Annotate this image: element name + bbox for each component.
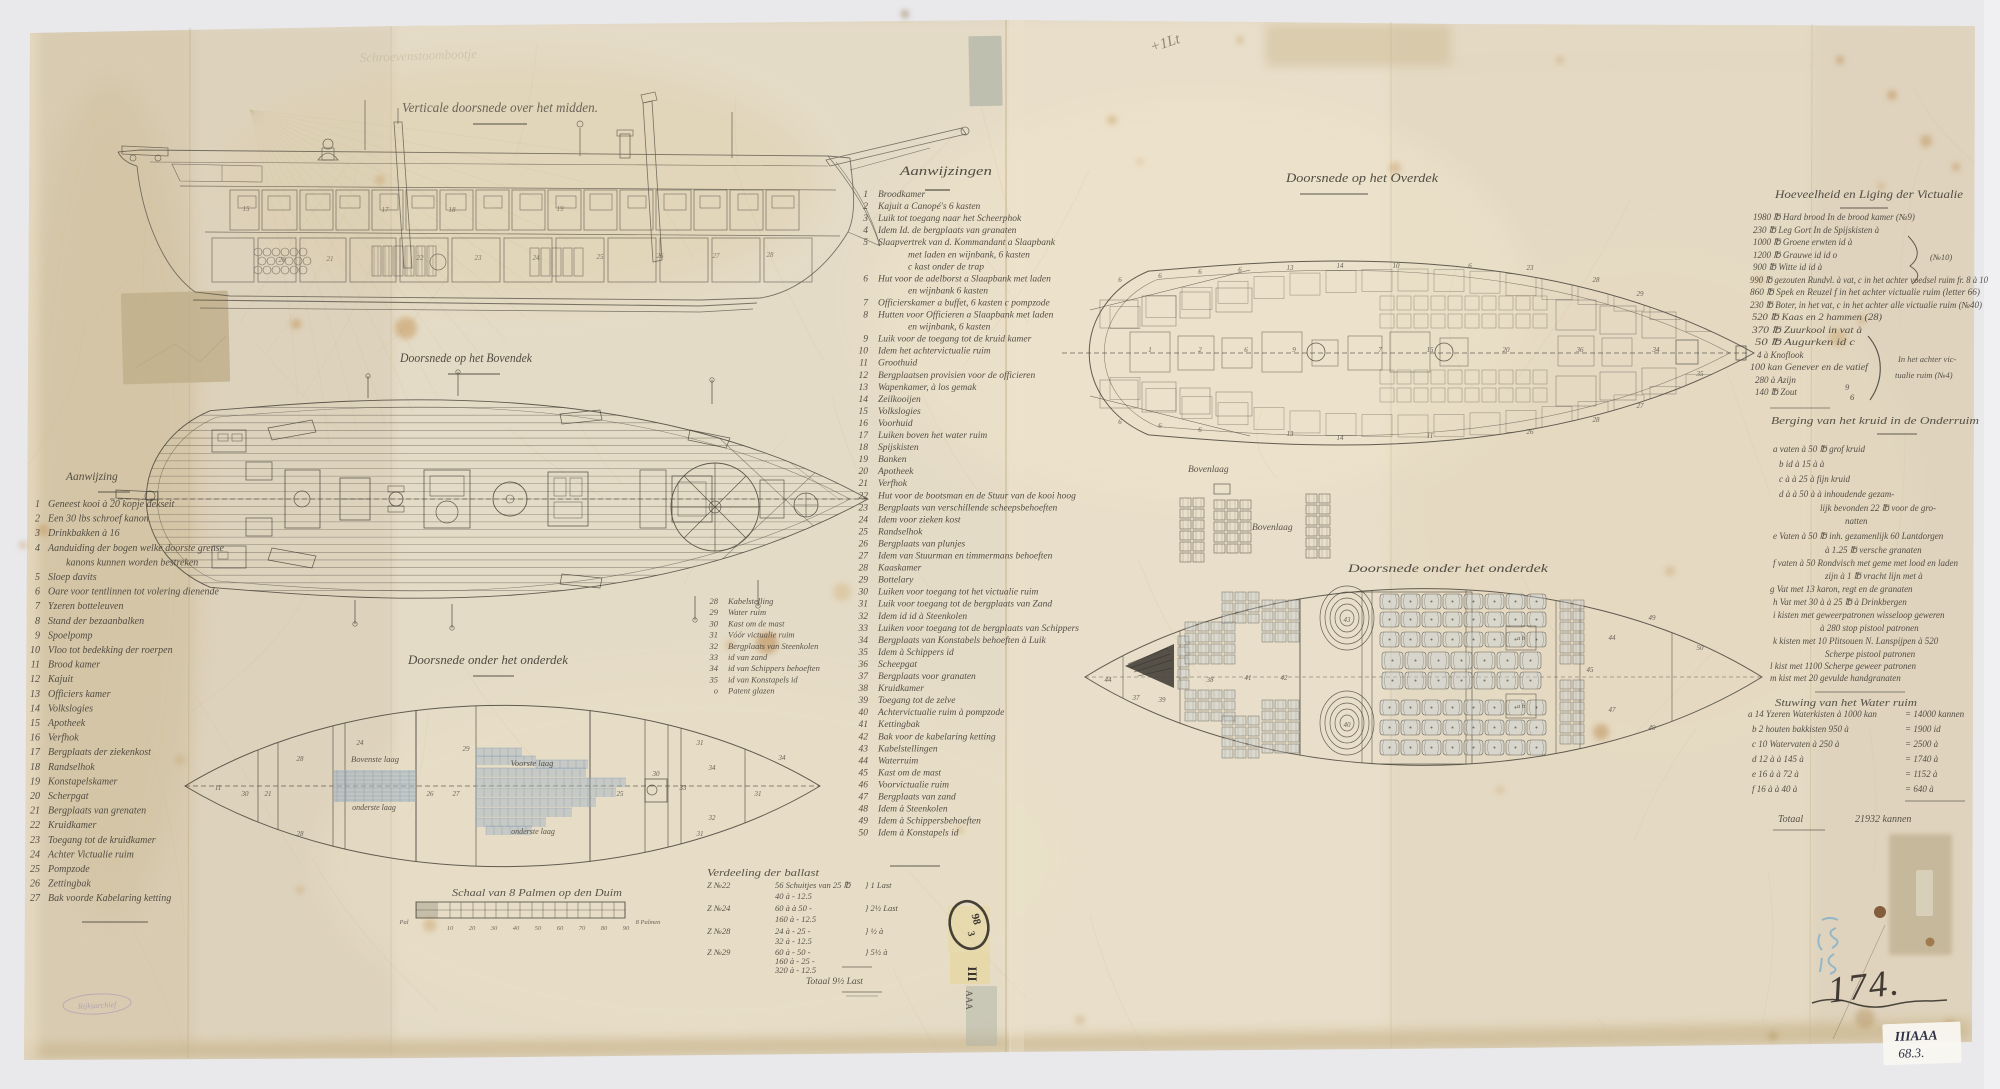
- svg-text:11: 11: [31, 660, 40, 671]
- svg-text:Wapenkamer, à los gemak: Wapenkamer, à los gemak: [878, 383, 977, 393]
- svg-text:2: 2: [1198, 346, 1202, 354]
- svg-text:33: 33: [858, 624, 869, 634]
- svg-text:230 ℔ Leg Gort In de Sp: 230 ℔ Leg Gort In de Spijskisten à: [1753, 225, 1880, 235]
- svg-text:Voorhuid: Voorhuid: [878, 419, 913, 429]
- svg-text:g Vat met 13 karon, regt en de: g Vat met 13 karon, regt en de granaten: [1770, 584, 1913, 594]
- svg-text:28: 28: [297, 755, 305, 763]
- svg-text:Bergplaats van grenaten: Bergplaats van grenaten: [48, 806, 146, 817]
- svg-text:28: 28: [1593, 416, 1601, 424]
- svg-text:19: 19: [30, 776, 40, 787]
- svg-text:28: 28: [767, 251, 775, 259]
- svg-text:49: 49: [1649, 614, 1657, 622]
- svg-text:30: 30: [490, 925, 498, 932]
- svg-text:Hut voor de adelborst a Slaapb: Hut voor de adelborst a Slaapbank met la…: [877, 274, 1051, 284]
- svg-text:Volkslogies: Volkslogies: [878, 407, 921, 417]
- svg-text:11: 11: [859, 359, 868, 369]
- svg-text:20: 20: [1503, 346, 1511, 354]
- svg-text:Zeilkooijen: Zeilkooijen: [878, 395, 921, 405]
- svg-text:Idem het achtervictua: Idem het achtervictualie ruim: [877, 347, 991, 357]
- svg-text:900 ℔ Witte id: 900 ℔ Witte id id à: [1753, 262, 1823, 272]
- svg-text:e Vaten à 50 ℔ inh. gezamenlij: e Vaten à 50 ℔ inh. gezamenlijk 60 Lantd…: [1773, 531, 1944, 541]
- svg-text:22: 22: [417, 254, 425, 262]
- svg-text:Zettingbak: Zettingbak: [48, 879, 91, 890]
- svg-text:28: 28: [710, 596, 719, 606]
- svg-text:50: 50: [535, 925, 542, 932]
- svg-text:28: 28: [859, 564, 869, 574]
- svg-text:Kajuit a Canopé's 6 kasten: Kajuit a Canopé's 6 kasten: [877, 202, 981, 212]
- svg-text:27: 27: [1637, 402, 1645, 410]
- svg-text:10: 10: [1393, 262, 1401, 270]
- svg-text:39: 39: [1158, 696, 1167, 704]
- svg-text:27: 27: [713, 252, 721, 260]
- svg-text:Verticale doorsnede over het m: Verticale doorsnede over het midden.: [402, 100, 598, 115]
- svg-text:18: 18: [449, 206, 457, 214]
- svg-text:11: 11: [1427, 432, 1433, 440]
- svg-text:860 ℔ Spek en Reuzel f in het: 860 ℔ Spek en Reuzel f in het achter vic…: [1750, 287, 1980, 297]
- svg-text:22: 22: [859, 491, 869, 501]
- svg-text:5: 5: [863, 238, 868, 248]
- svg-text:520 ℔ Kaas en 2 hammen (28): 520 ℔ Kaas en 2 hammen (28): [1752, 312, 1882, 322]
- svg-text:Stuwing van het Water ruim: Stuwing van het Water ruim: [1775, 698, 1918, 709]
- svg-text:20: 20: [30, 791, 40, 802]
- svg-text:47: 47: [1609, 706, 1617, 714]
- svg-text:34: 34: [709, 663, 719, 673]
- svg-text:Oare voor tentlinnen tot voler: Oare voor tentlinnen tot volering dienen…: [48, 587, 220, 598]
- svg-text:a b: a b: [1517, 635, 1526, 642]
- svg-text:Slaapvertrek van d. Kommandant: Slaapvertrek van d. Kommandant a Slaapba…: [878, 238, 1056, 248]
- svg-text:Luik voor toegang tot de bergp: Luik voor toegang tot de bergplaats van …: [877, 600, 1052, 610]
- svg-text:Bak voor de kabelaring ketting: Bak voor de kabelaring ketting: [878, 732, 996, 742]
- svg-text:280 à Azijn: 280 à Azijn: [1755, 375, 1796, 385]
- svg-text:26: 26: [30, 879, 40, 890]
- svg-text:3: 3: [862, 214, 868, 224]
- svg-text:18: 18: [30, 762, 40, 773]
- svg-text:Z №24: Z №24: [707, 903, 731, 913]
- svg-text:Idem Id. de bergplaats v: Idem Id. de bergplaats van granaten: [877, 226, 1017, 236]
- svg-text:Pompzode: Pompzode: [47, 864, 90, 875]
- svg-text:47: 47: [859, 793, 870, 803]
- svg-text:8 Palmen: 8 Palmen: [636, 919, 661, 926]
- svg-text:Volkslogies: Volkslogies: [48, 703, 93, 714]
- svg-text:21: 21: [30, 806, 40, 817]
- svg-text:30: 30: [652, 770, 661, 778]
- svg-text:Bergplaats voor granaten: Bergplaats voor granaten: [878, 672, 976, 682]
- svg-text:25: 25: [30, 864, 40, 875]
- svg-text:met laden en wijnbank, 6 kaste: met laden en wijnbank, 6 kasten: [908, 250, 1030, 260]
- svg-text:Z №28: Z №28: [707, 926, 731, 936]
- svg-text:Hutten voor Officieren a Slaap: Hutten voor Officieren a Slaapbank met l…: [877, 310, 1054, 321]
- svg-text:c kast onder de trap: c kast onder de trap: [908, 262, 984, 272]
- svg-text:18: 18: [859, 443, 869, 453]
- svg-text:Achtervictualie ruim à pompzod: Achtervictualie ruim à pompzode: [877, 708, 1004, 718]
- svg-text:17: 17: [859, 431, 870, 441]
- svg-text:} 2½ Last: } 2½ Last: [865, 903, 899, 913]
- svg-text:Idem van Stuurman en timmerma: Idem van Stuurman en timmermans behoefte…: [877, 551, 1053, 562]
- svg-text:c à à 25 à fijn kruid: c à à 25 à fijn kruid: [1779, 474, 1850, 484]
- svg-text:onderste laag: onderste laag: [352, 803, 396, 812]
- svg-text:l kist met 1100 Scherpe gewee: l kist met 1100 Scherpe geweer patronen: [1770, 661, 1916, 671]
- svg-text:Toegang tot de kruidkamer: Toegang tot de kruidkamer: [48, 835, 156, 846]
- svg-text:Bovenlaag: Bovenlaag: [1252, 523, 1293, 533]
- svg-text:8: 8: [35, 616, 40, 627]
- svg-text:onderste laag: onderste laag: [511, 827, 555, 836]
- svg-text:o: o: [714, 686, 718, 696]
- svg-text:29: 29: [463, 745, 471, 753]
- svg-text:Bergplaatsen provisien voor de: Bergplaatsen provisien voor de officiere…: [878, 370, 1035, 381]
- svg-text:Hut voor de bootsman en de Stu: Hut voor de bootsman en de Stuur van de …: [877, 491, 1076, 501]
- svg-text:6: 6: [1198, 426, 1202, 434]
- svg-text:26: 26: [1527, 428, 1535, 436]
- svg-text:5: 5: [35, 572, 40, 583]
- svg-text:Luik voor de toegang tot de kr: Luik voor de toegang tot de kruid kamer: [877, 335, 1032, 345]
- svg-text:Berging van het kruid in de On: Berging van het kruid in de Onderruim: [1771, 416, 1980, 427]
- svg-text:24: 24: [30, 849, 40, 860]
- svg-text:34: 34: [708, 764, 717, 772]
- svg-text:45: 45: [859, 768, 869, 778]
- svg-text:b id à 15 à à: b id à 15 à à: [1779, 459, 1825, 469]
- svg-text:70: 70: [579, 925, 586, 932]
- svg-text:48: 48: [859, 805, 869, 815]
- svg-text:33: 33: [709, 652, 719, 662]
- svg-text:23: 23: [30, 835, 40, 846]
- svg-text:49: 49: [1649, 724, 1657, 732]
- svg-text:990 ℔ gezouten Rundvl. à vat,: 990 ℔ gezouten Rundvl. à vat, c in het a…: [1750, 275, 1988, 285]
- svg-text:160 à - 12.5: 160 à - 12.5: [775, 914, 816, 924]
- svg-text:Luik tot toegang naar het Sche: Luik tot toegang naar het Scheerphok: [877, 214, 1022, 224]
- svg-text:2: 2: [35, 514, 40, 525]
- svg-text:Sloep davits: Sloep davits: [48, 572, 97, 583]
- svg-text:Vloo tot bedekking der roerpen: Vloo tot bedekking der roerpen: [48, 645, 173, 656]
- svg-text:Verfhok: Verfhok: [878, 478, 908, 489]
- svg-text:6: 6: [35, 587, 40, 598]
- svg-text:27: 27: [859, 552, 870, 562]
- svg-text:Bak voorde Kabelaring ketting: Bak voorde Kabelaring ketting: [48, 893, 171, 904]
- svg-text:Aanwijzing: Aanwijzing: [65, 471, 118, 483]
- svg-text:35: 35: [1696, 370, 1705, 378]
- svg-text:32: 32: [858, 612, 869, 622]
- svg-text:40 à - 12.5: 40 à - 12.5: [775, 891, 812, 901]
- svg-text:320 à - 12.5: 320 à - 12.5: [774, 965, 816, 975]
- svg-text:370 ℔ Zuurkool in vat à: 370 ℔ Zuurkool in vat à: [1751, 325, 1863, 335]
- svg-text:31: 31: [696, 830, 704, 838]
- svg-text:Idem à Konstapels id: Idem à Konstapels id: [877, 829, 959, 839]
- svg-text:Doorsnede onder het onderdek: Doorsnede onder het onderdek: [1347, 563, 1550, 575]
- svg-text:36: 36: [858, 660, 869, 670]
- svg-text:Doorsnede onder het onderdek: Doorsnede onder het onderdek: [407, 653, 568, 667]
- svg-text:Spijskisten: Spijskisten: [878, 443, 919, 453]
- svg-text:60: 60: [557, 925, 564, 932]
- svg-text:zijn à 1 ℔ vracht lijn met à: zijn à 1 ℔ vracht lijn met à: [1824, 571, 1923, 581]
- svg-text:24: 24: [859, 515, 869, 525]
- svg-text:6: 6: [1118, 418, 1122, 426]
- svg-text:Verdeeling der ballast: Verdeeling der ballast: [707, 868, 820, 879]
- svg-text:12: 12: [30, 674, 40, 685]
- svg-text:a b: a b: [1517, 703, 1526, 710]
- svg-text:Water ruim: Water ruim: [728, 607, 766, 617]
- svg-text:7: 7: [1378, 346, 1382, 354]
- svg-text:= 640 à: = 640 à: [1905, 784, 1934, 794]
- svg-text:tualie ruim (№4): tualie ruim (№4): [1895, 370, 1953, 380]
- svg-text:Idem à Steenkolen: Idem à Steenkolen: [877, 805, 948, 815]
- svg-text:III: III: [965, 966, 980, 981]
- svg-text:Banken: Banken: [878, 455, 907, 465]
- svg-text:b 2 houten bakkisten 950: b 2 houten bakkisten 950 à: [1752, 724, 1849, 734]
- svg-text:Vóór victualie ruim: Vóór victualie ruim: [728, 630, 795, 640]
- svg-text:= 1152 à: = 1152 à: [1905, 769, 1938, 779]
- svg-text:Kast om de mast: Kast om de mast: [877, 768, 941, 778]
- svg-text:38: 38: [858, 684, 869, 694]
- svg-text:Verfhok: Verfhok: [48, 733, 79, 744]
- svg-text:à 280 stop pistool patronen: à 280 stop pistool patronen: [1820, 623, 1919, 633]
- svg-text:32 à - 12.5: 32 à - 12.5: [774, 936, 812, 946]
- svg-text:15: 15: [30, 718, 40, 729]
- svg-text:Totaal 9½ Last: Totaal 9½ Last: [806, 976, 863, 987]
- svg-text:Kettingbak: Kettingbak: [877, 720, 920, 730]
- svg-text:32: 32: [708, 814, 717, 822]
- svg-text:Luiken boven het water ruim: Luiken boven het water ruim: [877, 431, 987, 441]
- svg-text:Yzeren botteleuven: Yzeren botteleuven: [48, 601, 123, 612]
- svg-text:Bergplaats van verschillende s: Bergplaats van verschillende scheepsbeho…: [878, 502, 1058, 513]
- svg-text:Idem id id: Idem id id à Steenkolen: [877, 612, 967, 622]
- svg-text:4: 4: [863, 226, 868, 236]
- svg-text:9: 9: [35, 630, 40, 641]
- svg-text:68.3.: 68.3.: [1898, 1045, 1925, 1061]
- svg-text:34: 34: [778, 754, 787, 762]
- svg-text:Kast om de mast: Kast om de mast: [727, 618, 785, 628]
- svg-text:43: 43: [859, 744, 869, 754]
- svg-text:26: 26: [859, 539, 869, 549]
- svg-text:m kist met 20 gevulde handgran: m kist met 20 gevulde handgranaten: [1770, 673, 1901, 683]
- svg-text:Idem à Schippersbehoeften: Idem à Schippersbehoeften: [877, 816, 981, 827]
- svg-text:Drinkbakken à 16: Drinkbakken à 16: [47, 528, 120, 539]
- svg-text:15: 15: [859, 407, 869, 417]
- svg-text:Bottelary: Bottelary: [878, 576, 914, 586]
- svg-text:Kruidkamer: Kruidkamer: [47, 820, 96, 831]
- svg-text:24: 24: [533, 254, 541, 262]
- svg-text:Voorste laag: Voorste laag: [511, 758, 554, 768]
- svg-text:Voorvictualie ruim: Voorvictualie ruim: [878, 780, 949, 790]
- svg-text:a vaten à 50 ℔ grof kruid: a vaten à 50 ℔ grof kruid: [1773, 444, 1866, 454]
- svg-text:kanons kunnen worden bestreken: kanons kunnen worden bestreken: [66, 557, 198, 568]
- svg-text:Spoelpomp: Spoelpomp: [48, 630, 92, 641]
- svg-text:i kisten met geweerpatronen w: i kisten met geweerpatronen wisseloop ge…: [1773, 610, 1945, 620]
- svg-text:Scheepgat: Scheepgat: [878, 660, 917, 670]
- svg-text:e 16 à à: e 16 à à 72 à: [1752, 769, 1799, 779]
- svg-text:60 à à 50 -: 60 à à 50 -: [775, 903, 812, 913]
- svg-text:29: 29: [859, 576, 869, 586]
- svg-text:15: 15: [1427, 346, 1435, 354]
- svg-text:20: 20: [859, 467, 869, 477]
- svg-text:34: 34: [858, 636, 869, 646]
- svg-text:Geneest kooi à 20 kopje deksei: Geneest kooi à 20 kopje dekseit: [48, 499, 175, 510]
- svg-text:Randselhok: Randselhok: [47, 762, 95, 773]
- svg-text:Een 30 lbs schroef kanon: Een 30 lbs schroef kanon: [47, 514, 149, 525]
- svg-text:35: 35: [709, 674, 719, 684]
- svg-text:40: 40: [513, 925, 520, 932]
- svg-text:Broodkamer: Broodkamer: [878, 190, 925, 200]
- svg-text:Patent glazen: Patent glazen: [727, 686, 775, 696]
- svg-text:31: 31: [709, 630, 719, 640]
- svg-text:44: 44: [1609, 634, 1617, 642]
- svg-text:10: 10: [447, 925, 454, 932]
- svg-text:Bergplaats van zand: Bergplaats van zand: [878, 793, 956, 803]
- svg-text:} ½ à: } ½ à: [865, 926, 883, 936]
- svg-text:8: 8: [863, 311, 868, 321]
- svg-text:Schaal van 8 Palmen op den Dui: Schaal van 8 Palmen op den Duim: [452, 888, 622, 899]
- svg-text:42: 42: [859, 732, 869, 742]
- svg-text:lijk bevonden 22 ℔ voor de gro: lijk bevonden 22 ℔ voor de gro-: [1820, 503, 1936, 513]
- svg-text:90: 90: [623, 925, 630, 932]
- svg-text:35: 35: [858, 648, 869, 658]
- svg-text:25: 25: [859, 527, 869, 537]
- svg-text:Scherpe pistool patronen: Scherpe pistool patronen: [1825, 649, 1916, 659]
- svg-text:25: 25: [597, 253, 605, 261]
- svg-text:k kisten met 10 Plitsouen N. L: k kisten met 10 Plitsouen N. Lanspijpen …: [1773, 636, 1939, 646]
- svg-text:14: 14: [859, 395, 869, 405]
- svg-text:29: 29: [1637, 290, 1645, 298]
- svg-text:230 ℔ Boter, in het vat, c in: 230 ℔ Boter, in het vat, c in het achter…: [1750, 300, 1982, 310]
- svg-text:26: 26: [427, 790, 435, 798]
- svg-text:19: 19: [859, 455, 869, 465]
- svg-text:d 12 à à: d 12 à à 145 à: [1752, 754, 1804, 764]
- svg-text:44: 44: [1105, 676, 1113, 684]
- svg-text:4 à Knoflook: 4 à Knoflook: [1757, 350, 1805, 360]
- svg-text:AAA: AAA: [964, 990, 974, 1010]
- svg-text:1: 1: [1148, 346, 1152, 354]
- svg-text:56 Schuitjes van 25 ℔: 56 Schuitjes van 25 ℔: [775, 880, 851, 890]
- svg-text:40: 40: [1344, 721, 1352, 729]
- svg-text:16: 16: [859, 419, 869, 429]
- svg-text:50 ℔ Augurken id c: 50 ℔ Augurken id c: [1755, 337, 1855, 347]
- svg-text:2: 2: [863, 202, 868, 212]
- svg-text:43: 43: [1344, 616, 1352, 624]
- svg-text:37: 37: [1132, 694, 1141, 702]
- svg-text:13: 13: [1287, 430, 1295, 438]
- svg-text:6: 6: [1158, 422, 1162, 430]
- svg-text:1200 ℔ Grauwe id i: 1200 ℔ Grauwe id id o: [1753, 250, 1838, 260]
- svg-text:38: 38: [1206, 676, 1215, 684]
- svg-text:Doorsnede op het Overdek: Doorsnede op het Overdek: [1285, 171, 1439, 185]
- svg-text:140 ℔ Zout: 140 ℔ Zout: [1755, 387, 1797, 397]
- svg-text:30: 30: [858, 588, 869, 598]
- svg-text:42: 42: [1281, 674, 1289, 682]
- svg-text:13: 13: [1287, 264, 1295, 272]
- svg-text:6: 6: [1118, 276, 1122, 284]
- svg-text:41: 41: [1245, 674, 1252, 682]
- svg-text:31: 31: [696, 739, 704, 747]
- svg-text:Bergplaats van plunjes: Bergplaats van plunjes: [878, 539, 966, 549]
- svg-text:21932 kannen: 21932 kannen: [1855, 814, 1911, 825]
- svg-text:Pal: Pal: [398, 919, 408, 926]
- svg-text:27: 27: [453, 790, 461, 798]
- svg-text:1: 1: [863, 190, 868, 200]
- svg-text:28: 28: [1593, 276, 1601, 284]
- svg-text:Toegang tot de zelve: Toegang tot de zelve: [878, 696, 955, 706]
- svg-text:1000 ℔ Groene erwten id: 1000 ℔ Groene erwten id à: [1753, 237, 1853, 247]
- svg-text:12: 12: [859, 371, 869, 381]
- svg-text:en wijnbank 6 kasten: en wijnbank 6 kasten: [908, 286, 988, 296]
- svg-text:id van zand: id van zand: [728, 652, 768, 662]
- svg-text:46: 46: [859, 780, 869, 790]
- svg-text:39: 39: [858, 696, 869, 706]
- svg-text:Kabelstelling: Kabelstelling: [727, 596, 773, 606]
- svg-text:45: 45: [1587, 666, 1595, 674]
- svg-text:6: 6: [863, 274, 868, 284]
- svg-text:Aanduiding der bogen welke doo: Aanduiding der bogen welke doorste grens…: [47, 543, 225, 554]
- svg-text:14: 14: [1337, 434, 1345, 442]
- svg-text:Bergplaats der ziekenkost: Bergplaats der ziekenkost: [48, 747, 151, 758]
- svg-text:50: 50: [859, 829, 869, 839]
- svg-text:Idem voor zieken kost: Idem voor zieken kost: [877, 515, 961, 525]
- svg-text:24 à - 25 -: 24 à - 25 -: [775, 926, 811, 936]
- svg-text:6: 6: [1244, 346, 1248, 354]
- svg-text:17: 17: [30, 747, 41, 758]
- svg-text:Kaaskamer: Kaaskamer: [877, 564, 922, 574]
- svg-text:6: 6: [1158, 272, 1162, 280]
- svg-text:Aanwijzingen: Aanwijzingen: [899, 163, 992, 178]
- svg-text:Apotheek: Apotheek: [47, 718, 86, 729]
- svg-text:} 1 Last: } 1 Last: [865, 880, 892, 890]
- svg-text:6: 6: [1238, 266, 1242, 274]
- svg-text:1980 ℔ Hard brood In de bro: 1980 ℔ Hard brood In de brood kamer (№9): [1753, 212, 1915, 222]
- svg-text:f 16 à: f 16 à à 40 à: [1752, 784, 1798, 794]
- svg-text:6: 6: [1468, 262, 1472, 270]
- svg-text:d à à 50 à à inho: d à à 50 à à inhoudende gezam-: [1779, 489, 1894, 499]
- svg-text:(№10): (№10): [1930, 252, 1952, 262]
- svg-text:Apotheek: Apotheek: [877, 467, 914, 477]
- svg-text:en wijnbank, 6 kasten: en wijnbank, 6 kasten: [908, 323, 991, 333]
- svg-text:22: 22: [30, 820, 40, 831]
- svg-text:Z №22: Z №22: [707, 880, 731, 890]
- svg-text:Officiers kamer: Officiers kamer: [48, 689, 111, 700]
- svg-text:10: 10: [859, 347, 869, 357]
- svg-text:h Vat met 30 à à 25 ℔ à: h Vat met 30 à à 25 ℔ à Drinkbergen: [1773, 597, 1907, 607]
- svg-text:Groothuid: Groothuid: [878, 359, 917, 369]
- svg-text:29: 29: [710, 607, 719, 617]
- svg-text:Idem à Schippers id: Idem à Schippers id: [877, 648, 954, 658]
- svg-text:41: 41: [859, 720, 869, 730]
- svg-text:Stand der bezaanbalken: Stand der bezaanbalken: [48, 616, 144, 627]
- svg-text:17: 17: [382, 206, 390, 214]
- svg-text:31: 31: [754, 790, 762, 798]
- svg-text:36: 36: [1576, 346, 1585, 354]
- svg-text:49: 49: [859, 817, 869, 827]
- svg-text:16: 16: [30, 733, 40, 744]
- svg-text:IIIAAA: IIIAAA: [1893, 1027, 1937, 1044]
- svg-text:Hoeveelheid en Liging der Vict: Hoeveelheid en Liging der Victualie: [1774, 189, 1963, 201]
- svg-text:33: 33: [679, 784, 688, 792]
- svg-text:31: 31: [858, 600, 869, 610]
- svg-text:Scherpgat: Scherpgat: [48, 791, 89, 802]
- svg-text:23: 23: [859, 503, 869, 513]
- svg-text:In het achter vic-: In het achter vic-: [1897, 354, 1956, 364]
- svg-text:50: 50: [1697, 644, 1705, 652]
- svg-text:Z №29: Z №29: [707, 947, 731, 957]
- svg-text:10: 10: [30, 645, 40, 656]
- svg-text:3: 3: [34, 528, 40, 539]
- svg-text:Kabelstellingen: Kabelstellingen: [877, 744, 938, 754]
- svg-text:34: 34: [1652, 346, 1661, 354]
- svg-text:32: 32: [709, 641, 719, 651]
- svg-text:21: 21: [327, 255, 334, 263]
- svg-text:40: 40: [859, 708, 869, 718]
- svg-text:26: 26: [657, 252, 665, 260]
- svg-text:20: 20: [279, 256, 287, 264]
- svg-text:19: 19: [557, 205, 565, 213]
- svg-text:Waterruim: Waterruim: [878, 756, 918, 766]
- svg-text:natten: natten: [1845, 516, 1868, 526]
- svg-text:Konstapelskamer: Konstapelskamer: [47, 776, 118, 787]
